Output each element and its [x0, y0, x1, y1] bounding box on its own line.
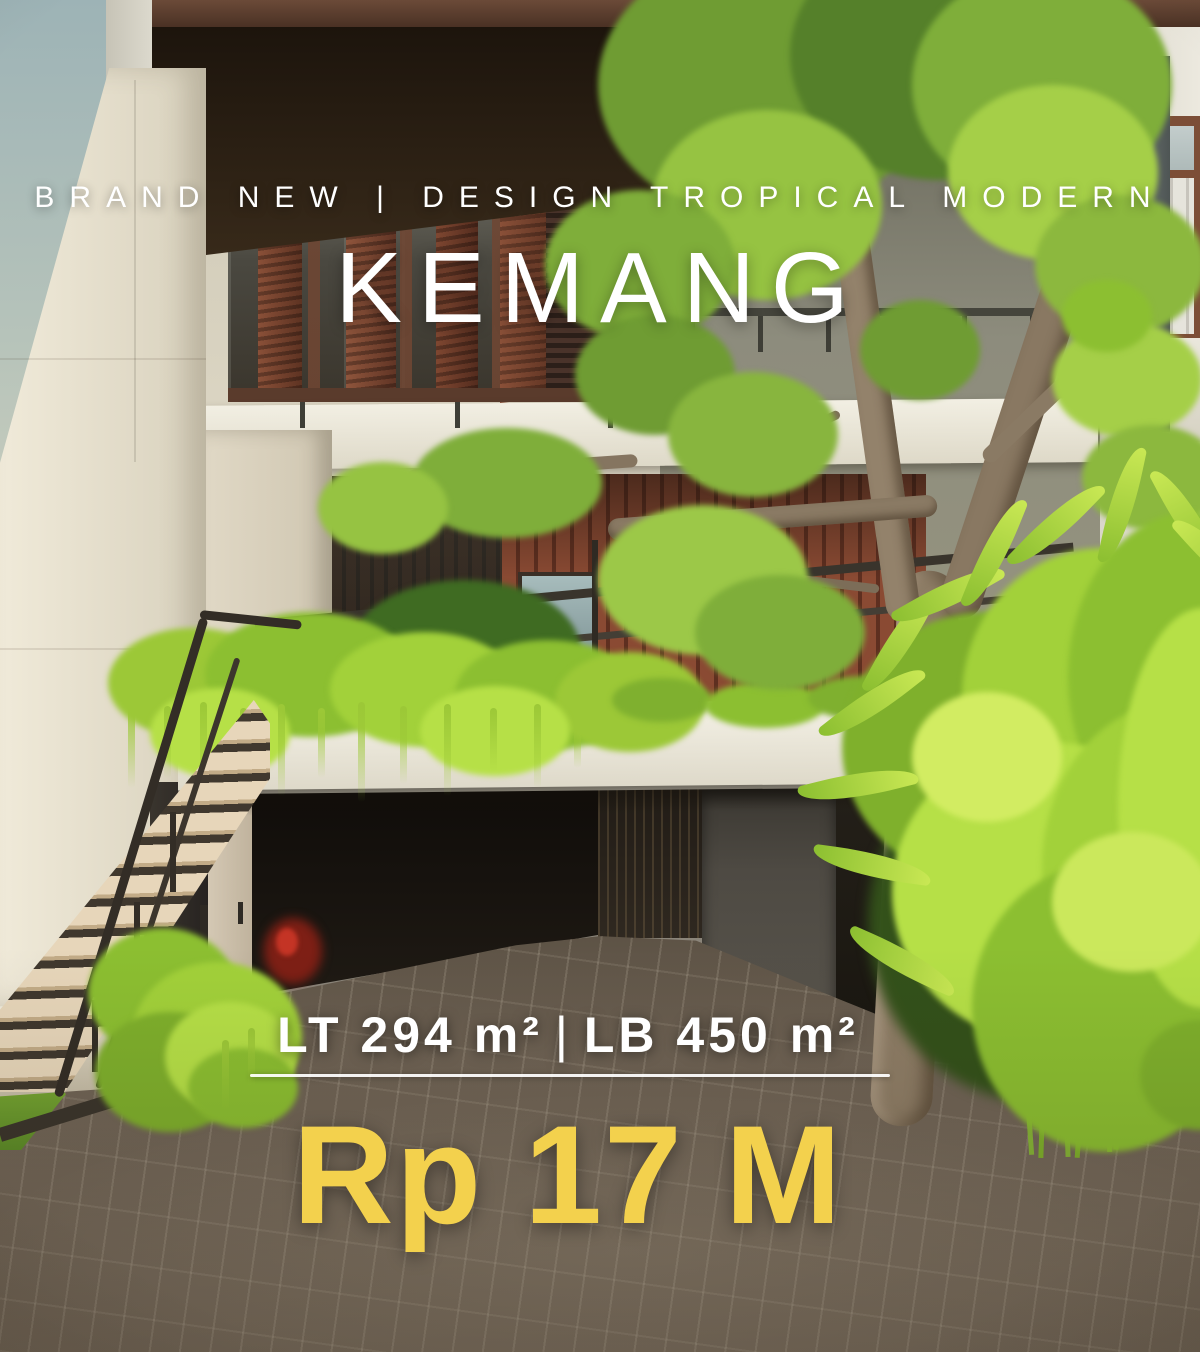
fern-strand	[400, 706, 407, 784]
motorcycle-highlight	[276, 928, 298, 956]
tree-foliage	[668, 372, 838, 497]
fern-strand	[444, 704, 451, 796]
listing-specs: LT 294 m²|LB 450 m²	[0, 1006, 1136, 1064]
land-area-value: LT 294 m²	[277, 1007, 543, 1063]
fern-strand	[490, 708, 497, 772]
balustrade-post	[455, 402, 460, 428]
listing-tagline: BRAND NEW | DESIGN TROPICAL MODERN	[0, 181, 1200, 215]
building-area-value: LB 450 m²	[584, 1007, 859, 1063]
specs-price-divider	[250, 1074, 890, 1077]
specs-separator: |	[555, 1007, 572, 1063]
fern-strand	[128, 700, 135, 788]
tropical-plant-highlight	[1052, 832, 1200, 972]
stair-post	[170, 812, 176, 892]
fern-strand	[278, 704, 285, 796]
listing-title: KEMANG	[0, 231, 1200, 346]
tree-foliage	[318, 462, 448, 554]
pillar-seam	[0, 358, 206, 360]
fern-strand	[318, 708, 325, 778]
fern-strand	[358, 702, 365, 802]
property-listing-photo: BRAND NEW | DESIGN TROPICAL MODERN KEMAN…	[0, 0, 1200, 1352]
listing-price: Rp 17 M	[0, 1094, 1136, 1256]
moss-tuft	[612, 678, 712, 722]
door-handle	[238, 902, 243, 924]
tree-foliage	[695, 575, 865, 690]
balustrade-post	[300, 402, 305, 428]
fern-strand	[574, 708, 581, 768]
tropical-plant-highlight	[912, 692, 1062, 822]
fern-strand	[534, 704, 541, 788]
